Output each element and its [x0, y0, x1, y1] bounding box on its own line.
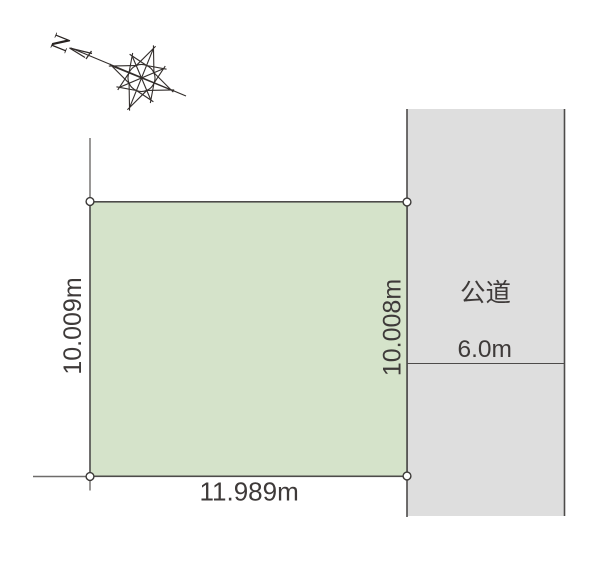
svg-text:10.008m: 10.008m [379, 279, 407, 376]
svg-text:公道: 公道 [460, 280, 511, 308]
svg-text:6.0m: 6.0m [457, 336, 511, 363]
svg-text:10.009m: 10.009m [59, 277, 87, 374]
svg-text:11.989m: 11.989m [200, 477, 299, 507]
svg-text:N: N [46, 30, 77, 56]
